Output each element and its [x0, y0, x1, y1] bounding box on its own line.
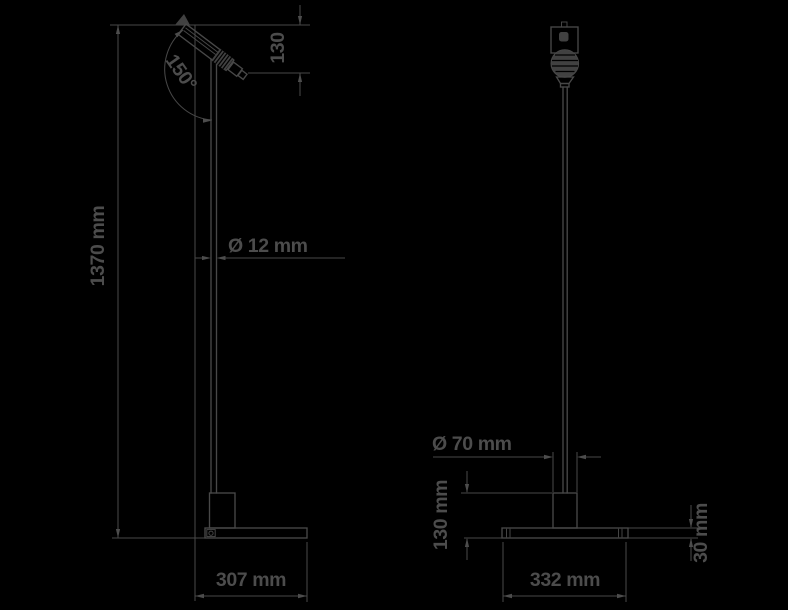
- column-diameter-dimension: Ø 70 mm: [432, 433, 601, 459]
- side-pole: [211, 59, 217, 493]
- pole-diameter-dimension: Ø 12 mm: [195, 235, 345, 260]
- label-base-width: 332 mm: [530, 569, 600, 591]
- label-pole-diameter: Ø 12 mm: [228, 235, 308, 257]
- dimension-drawing-canvas: 150° 130 1370 mm Ø 12 mm: [0, 0, 788, 610]
- angle-dimension: 150°: [161, 30, 212, 123]
- front-base: [502, 493, 628, 538]
- floor-lamp-technical-drawing: 150° 130 1370 mm Ø 12 mm: [0, 0, 788, 610]
- label-base-height: 130 mm: [430, 480, 452, 550]
- base-width-dimension: 332 mm: [503, 569, 626, 598]
- head-length-dimension: 130: [267, 5, 302, 96]
- side-view: 150° 130 1370 mm Ø 12 mm: [87, 5, 345, 602]
- label-head-length: 130: [267, 32, 289, 64]
- height-dimension: 1370 mm: [87, 25, 120, 538]
- side-base: [205, 493, 307, 538]
- front-view: Ø 70 mm 130 mm 30 mm 332 mm: [430, 22, 712, 602]
- base-height-dimension: 130 mm: [430, 471, 469, 560]
- head-visor-tip: [175, 14, 190, 25]
- base-depth-dimension: 307 mm: [195, 569, 307, 598]
- front-pole: [563, 87, 567, 493]
- label-base-depth: 307 mm: [216, 569, 286, 591]
- label-column-diameter: Ø 70 mm: [432, 433, 512, 455]
- front-lamp-head: [551, 22, 579, 87]
- plate-thickness-dimension: 30 mm: [689, 503, 712, 563]
- label-plate-thickness: 30 mm: [690, 503, 712, 563]
- label-overall-height: 1370 mm: [87, 206, 109, 287]
